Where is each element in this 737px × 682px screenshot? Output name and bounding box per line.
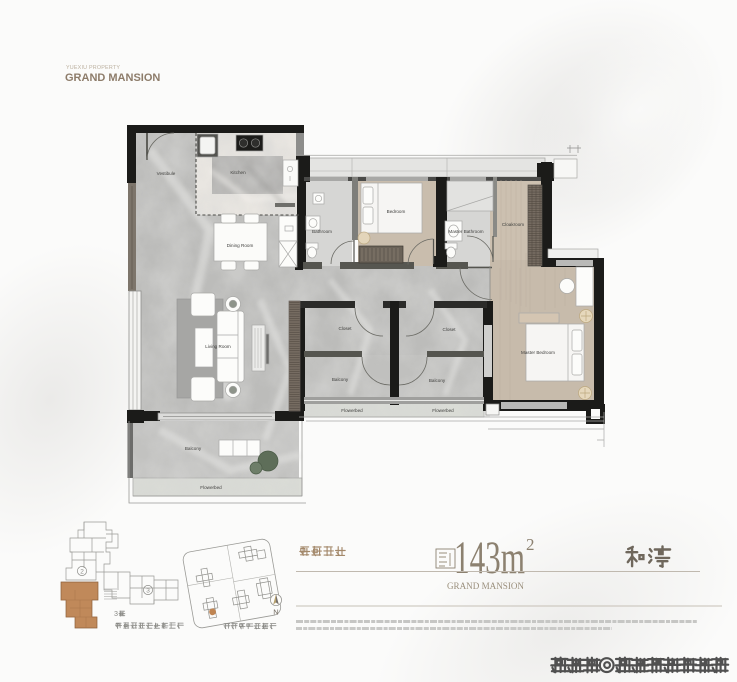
svg-text:Vestibule: Vestibule: [157, 171, 176, 176]
svg-text:GRAND MANSION: GRAND MANSION: [447, 582, 524, 592]
svg-text:Dining Room: Dining Room: [227, 243, 254, 248]
svg-text:Flowerbed: Flowerbed: [341, 408, 363, 413]
svg-text:Flowerbed: Flowerbed: [200, 485, 222, 490]
svg-text:Closet: Closet: [338, 326, 352, 331]
svg-text:2: 2: [80, 569, 84, 576]
svg-text:Balcony: Balcony: [185, 446, 202, 451]
svg-text:N: N: [273, 608, 278, 617]
svg-text:Flowerbed: Flowerbed: [432, 408, 454, 413]
svg-text:3: 3: [146, 588, 150, 595]
svg-text:Master Bathroom: Master Bathroom: [448, 229, 483, 234]
svg-text:Closet: Closet: [442, 327, 456, 332]
svg-text:Living Room: Living Room: [205, 344, 231, 349]
svg-text:Cloakroom: Cloakroom: [502, 222, 524, 227]
svg-text:Bedroom: Bedroom: [387, 209, 406, 214]
svg-text:Balcony: Balcony: [332, 377, 349, 382]
svg-text:Kitchen: Kitchen: [230, 170, 246, 175]
svg-text:2: 2: [526, 535, 535, 554]
svg-text:3: 3: [114, 609, 118, 618]
svg-text:143m: 143m: [454, 532, 525, 584]
svg-text:Bathroom: Bathroom: [312, 229, 332, 234]
svg-text:Master Bedroom: Master Bedroom: [521, 350, 555, 355]
svg-text:Balcony: Balcony: [429, 378, 446, 383]
